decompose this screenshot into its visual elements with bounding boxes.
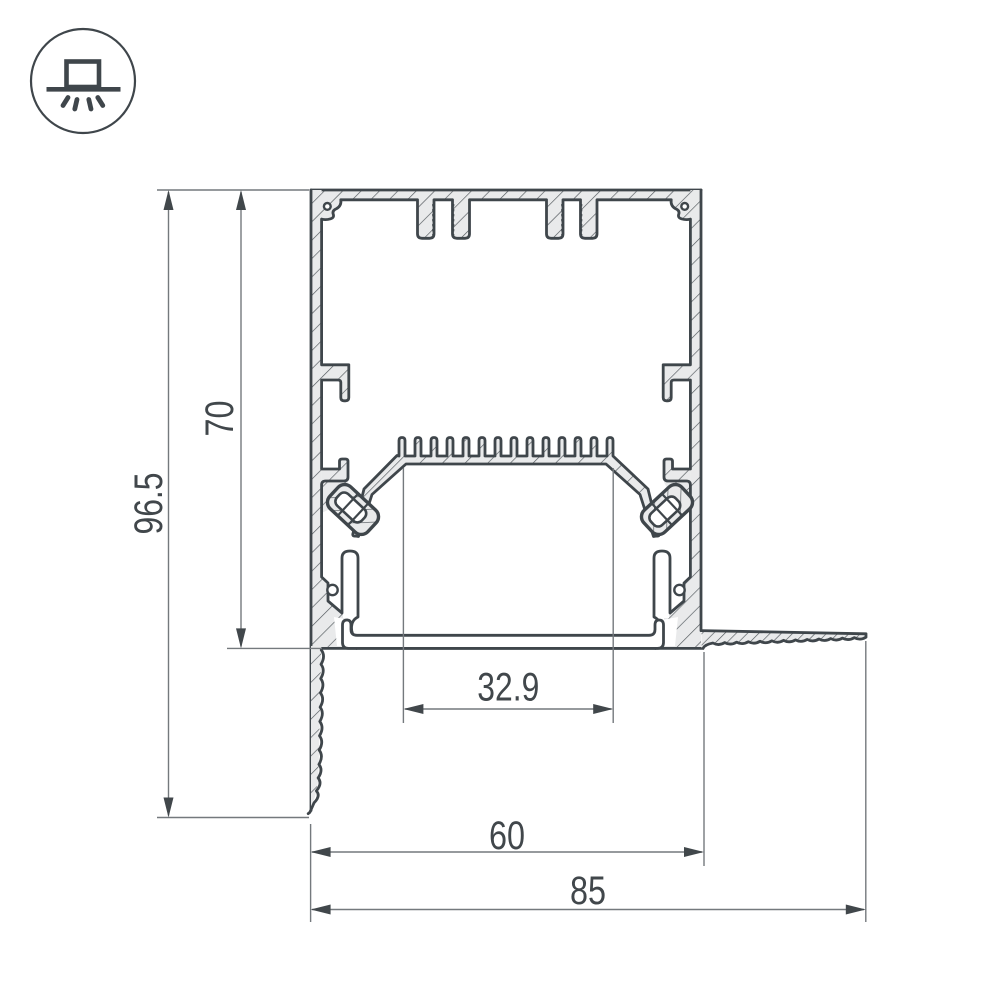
svg-text:70: 70 <box>198 401 242 437</box>
svg-text:60: 60 <box>489 814 525 858</box>
svg-text:85: 85 <box>570 869 606 913</box>
svg-text:96.5: 96.5 <box>127 473 171 535</box>
svg-text:32.9: 32.9 <box>477 666 539 710</box>
